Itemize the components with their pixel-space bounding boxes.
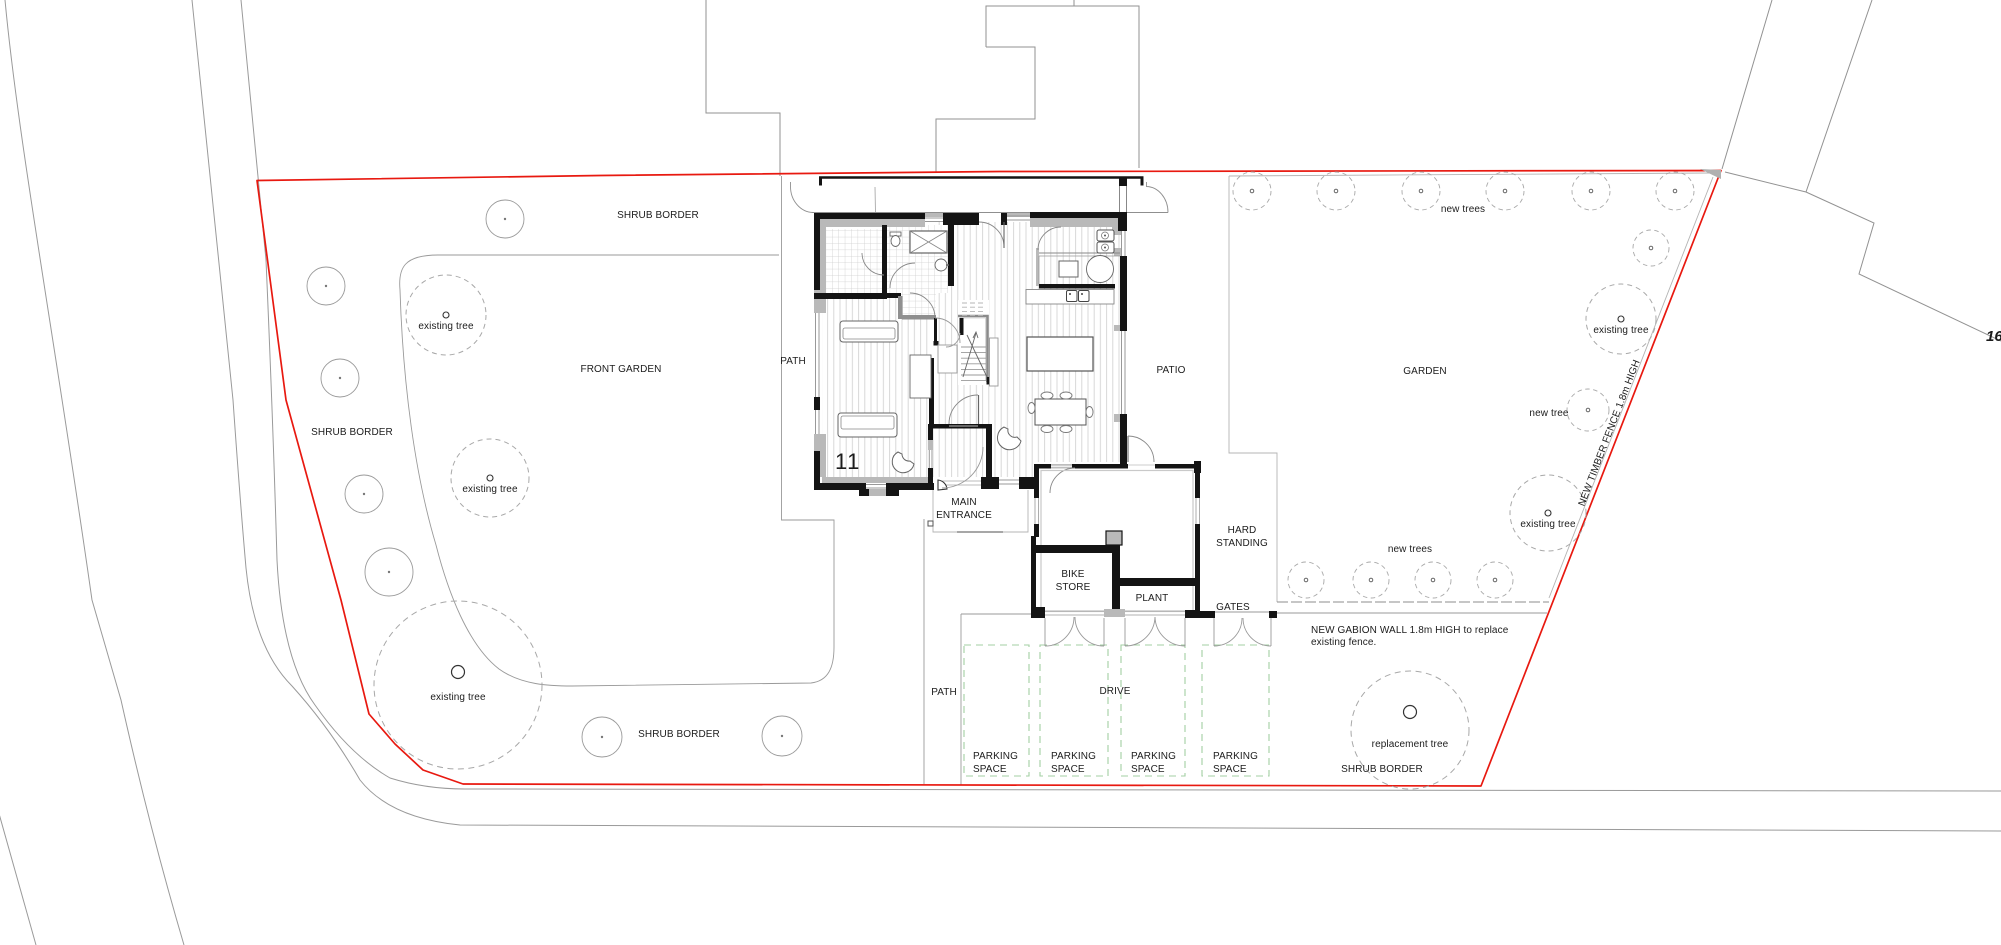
svg-text:PLANT: PLANT bbox=[1136, 593, 1169, 604]
svg-text:MAIN: MAIN bbox=[951, 497, 976, 508]
svg-text:PATH: PATH bbox=[931, 687, 957, 698]
svg-text:new trees: new trees bbox=[1441, 204, 1485, 215]
svg-text:STANDING: STANDING bbox=[1216, 538, 1268, 549]
svg-text:replacement tree: replacement tree bbox=[1372, 739, 1449, 750]
svg-text:SPACE: SPACE bbox=[973, 764, 1007, 775]
svg-text:PARKING: PARKING bbox=[1131, 751, 1176, 762]
svg-text:PATIO: PATIO bbox=[1156, 365, 1185, 376]
svg-text:PARKING: PARKING bbox=[1213, 751, 1258, 762]
svg-text:NEW GABION WALL 1.8m HIGH to r: NEW GABION WALL 1.8m HIGH to replace bbox=[1311, 625, 1509, 636]
svg-text:SPACE: SPACE bbox=[1051, 764, 1085, 775]
svg-text:11: 11 bbox=[835, 449, 861, 474]
svg-text:PATH: PATH bbox=[780, 356, 806, 367]
svg-text:existing tree: existing tree bbox=[418, 321, 474, 332]
svg-text:existing tree: existing tree bbox=[462, 484, 518, 495]
svg-text:existing tree: existing tree bbox=[430, 692, 486, 703]
svg-text:existing tree: existing tree bbox=[1593, 325, 1649, 336]
svg-text:SHRUB BORDER: SHRUB BORDER bbox=[617, 210, 699, 221]
svg-text:ENTRANCE: ENTRANCE bbox=[936, 510, 992, 521]
svg-text:new tree: new tree bbox=[1529, 408, 1568, 419]
svg-text:SHRUB BORDER: SHRUB BORDER bbox=[638, 729, 720, 740]
svg-text:DRIVE: DRIVE bbox=[1099, 686, 1130, 697]
svg-text:STORE: STORE bbox=[1056, 582, 1091, 593]
svg-text:new trees: new trees bbox=[1388, 544, 1432, 555]
svg-text:SHRUB BORDER: SHRUB BORDER bbox=[311, 427, 393, 438]
svg-text:16: 16 bbox=[1986, 328, 2001, 345]
svg-text:SHRUB BORDER: SHRUB BORDER bbox=[1341, 764, 1423, 775]
svg-text:PARKING: PARKING bbox=[973, 751, 1018, 762]
svg-text:GARDEN: GARDEN bbox=[1403, 366, 1446, 377]
svg-text:existing fence.: existing fence. bbox=[1311, 637, 1376, 648]
svg-text:HARD: HARD bbox=[1228, 525, 1257, 536]
svg-text:FRONT GARDEN: FRONT GARDEN bbox=[580, 364, 661, 375]
svg-text:PARKING: PARKING bbox=[1051, 751, 1096, 762]
svg-text:existing tree: existing tree bbox=[1520, 519, 1576, 530]
svg-text:SPACE: SPACE bbox=[1131, 764, 1165, 775]
svg-text:GATES: GATES bbox=[1216, 602, 1250, 613]
svg-text:SPACE: SPACE bbox=[1213, 764, 1247, 775]
svg-text:BIKE: BIKE bbox=[1061, 569, 1084, 580]
